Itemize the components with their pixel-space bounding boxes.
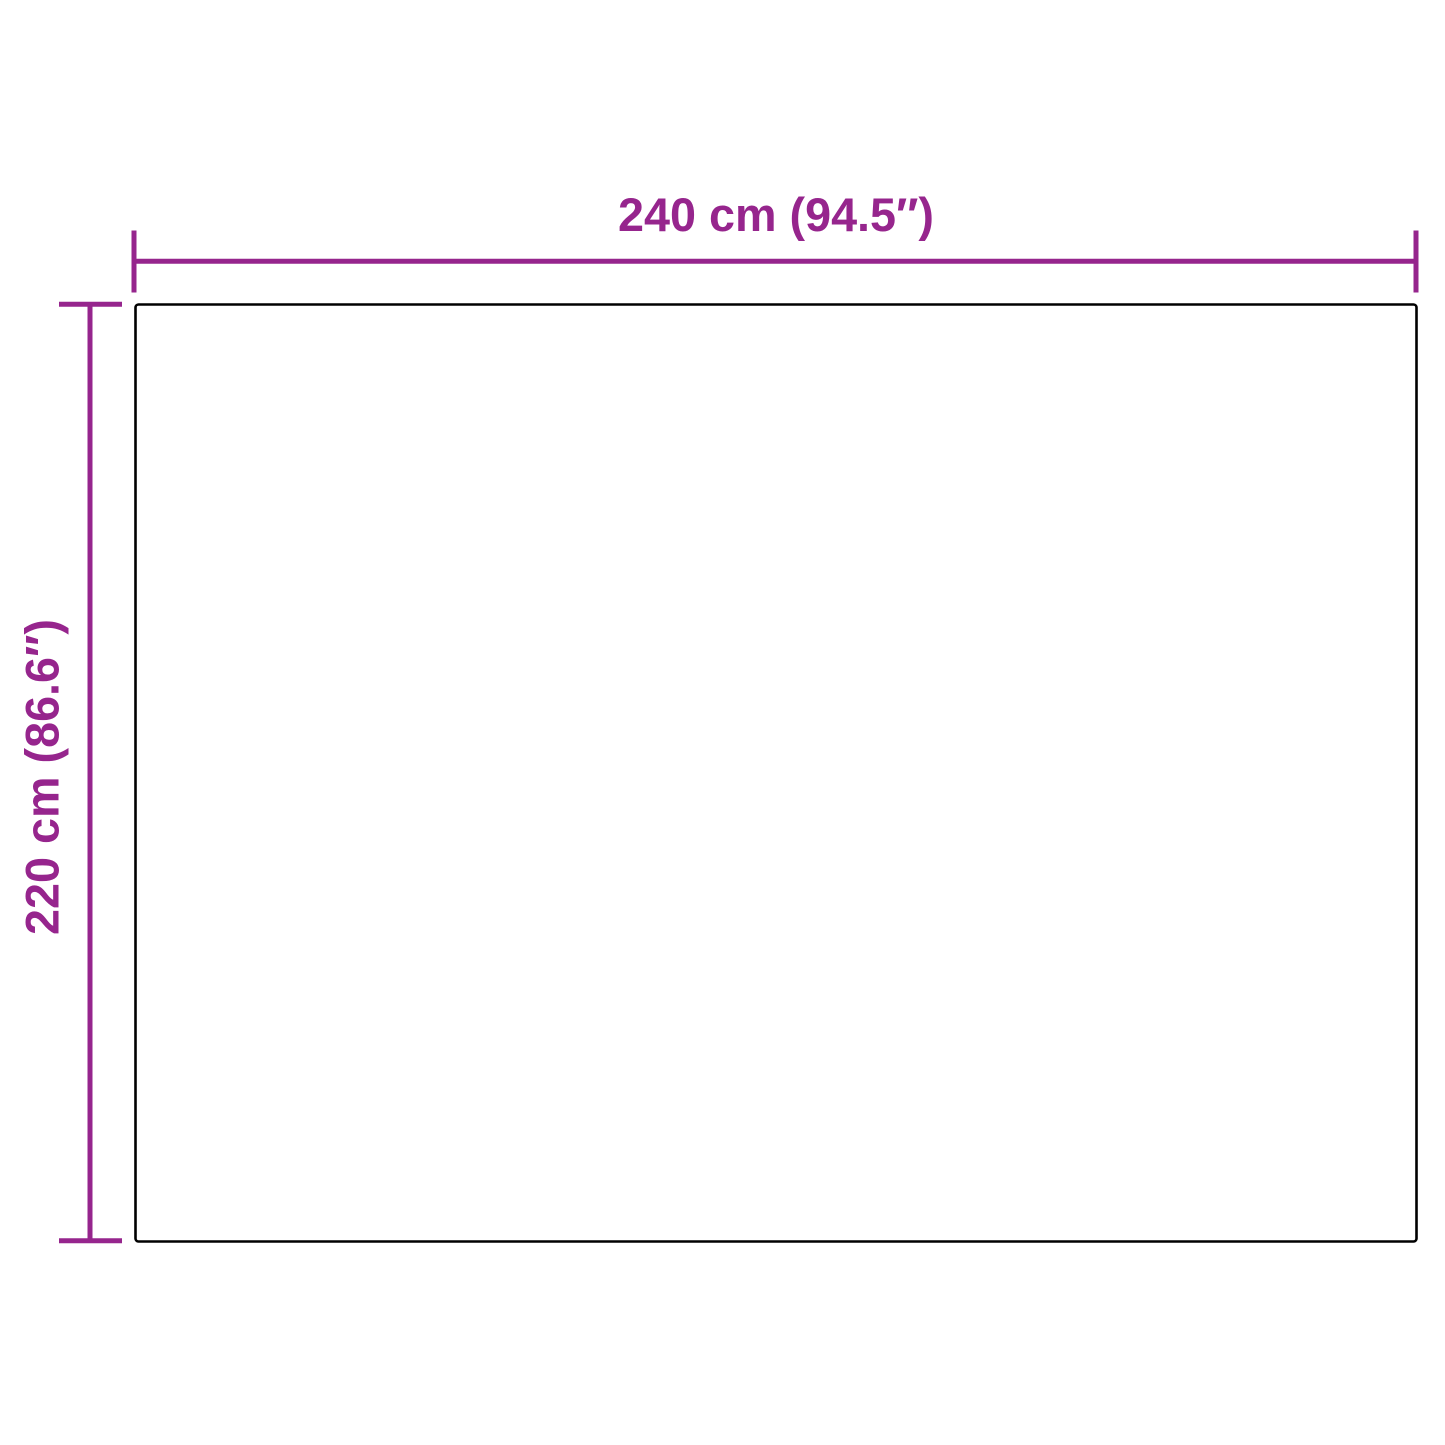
svg-text:220 cm (86.6″): 220 cm (86.6″) (17, 619, 70, 935)
svg-text:240 cm (94.5″): 240 cm (94.5″) (618, 189, 934, 242)
